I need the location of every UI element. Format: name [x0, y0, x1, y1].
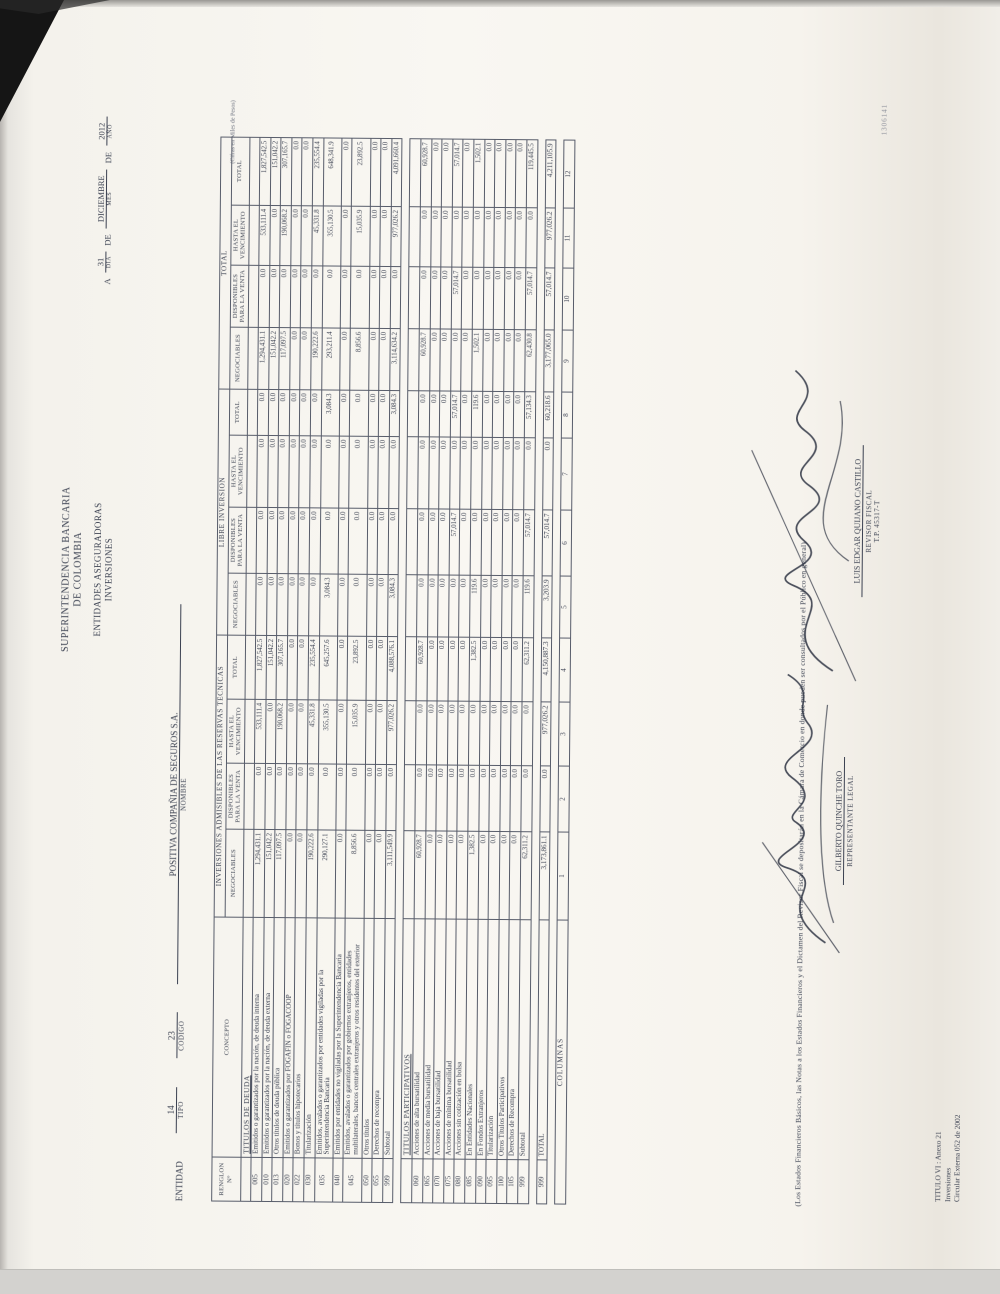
row-2-090-code: 090 [475, 1159, 486, 1203]
section-2-blank7 [407, 437, 418, 509]
tipo-value: 14 [166, 1087, 177, 1133]
row-1-020-col1: 0.0 [285, 830, 296, 918]
row-2-090-col4: 0.0 [480, 637, 491, 701]
row-1-022-col6: 0.0 [299, 508, 310, 574]
column-number-7: 7 [561, 438, 572, 510]
column-number-2: 2 [558, 766, 569, 832]
row-2-075-col1: 0.0 [446, 831, 457, 919]
row-1-040-col12: 0.0 [341, 138, 352, 206]
row-1-010-col1: 151,042.2 [264, 829, 275, 917]
row-1-005-col2: 0.0 [254, 763, 265, 829]
row-1-005-col11: 533,111.4 [259, 205, 270, 265]
section-2-blank9 [408, 329, 419, 391]
row-1-030-code: 030 [304, 1158, 315, 1202]
section-1-blank5 [245, 573, 256, 635]
row-2-999-col1: 62,311.2 [520, 832, 531, 920]
section-1-blank12 [249, 137, 260, 205]
deposit-footnote: (Los Estados Financieros Básicos, las No… [793, 127, 811, 1207]
row-1-010-col11: 0.0 [270, 205, 281, 265]
row-1-999-col5: 3,084.3 [387, 575, 398, 637]
row-2-080-col5: 0.0 [459, 575, 470, 637]
row-1-013-col7: 0.0 [278, 436, 289, 508]
row-2-090-col10: 0.0 [483, 267, 494, 329]
row-1-013-col11: 190,068.2 [280, 206, 291, 266]
row-1-035-concept: Emitidos, avalados o garantizados por en… [315, 918, 335, 1158]
row-2-095-col5: 0.0 [491, 575, 502, 637]
row-1-050-col6: 0.0 [367, 508, 378, 574]
row-2-105-col4: 0.0 [511, 638, 522, 702]
row-2-085-code: 085 [465, 1159, 476, 1203]
subheader-col8: TOTAL [229, 389, 247, 435]
row-2-100-col9: 0.0 [503, 330, 514, 392]
row-2-065-col2: 0.0 [425, 765, 436, 831]
row-1-999-col4: 4,088,576.1 [387, 637, 398, 701]
row-1-030-col8: 0.0 [310, 390, 321, 436]
row-2-085-col12: 1,502.1 [473, 139, 484, 207]
row-1-045-col10: 0.0 [351, 266, 370, 328]
row-2-999-col12: 119,445.5 [526, 140, 537, 208]
row-1-055-col10: 0.0 [379, 266, 390, 328]
column-number-6: 6 [560, 510, 571, 576]
row-1-045-col1: 8,856.6 [346, 830, 365, 918]
section-1-blank4 [245, 635, 256, 699]
row-1-050-code: 050 [361, 1158, 372, 1202]
row-1-999-col2: 0.0 [386, 765, 397, 831]
row-2-999-col7: 0.0 [524, 438, 535, 510]
row-2-065-col12: 0.0 [431, 139, 442, 207]
column-number-11: 11 [563, 208, 574, 268]
row-2-999-col2: 0.0 [521, 766, 532, 832]
row-2-060-col11: 0.0 [420, 207, 431, 267]
total-row-col8: 60,218.6 [543, 392, 554, 438]
row-1-035-col3: 355,130.5 [318, 700, 337, 764]
row-1-022-col3: 0.0 [297, 700, 308, 764]
authority-block: SUPERINTENDENCIA BANCARIA DE COLOMBIA [59, 424, 86, 714]
subheader-col9: NEGOCIABLES [229, 327, 248, 389]
row-1-005-col4: 1,827,542.5 [255, 635, 266, 699]
form-rotated-content: SUPERINTENDENCIA BANCARIA DE COLOMBIA EN… [0, 0, 1000, 1294]
column-number-9: 9 [562, 330, 573, 392]
row-1-040-code: 040 [332, 1158, 343, 1202]
row-1-050-col10: 0.0 [369, 266, 380, 328]
row-2-080-col6: 0.0 [460, 509, 471, 575]
column-number-8: 8 [561, 392, 572, 438]
section-2-code [401, 1159, 412, 1203]
column-numbers-row: COLUMNAS123456789101112 [555, 140, 575, 1204]
row-2-075-col7: 0.0 [449, 437, 460, 509]
subheader-col4: TOTAL [227, 635, 246, 699]
row-1-035-col7: 0.0 [320, 436, 339, 508]
row-1-040-col7: 0.0 [339, 436, 350, 508]
row-1-022-col1: 0.0 [296, 830, 307, 918]
row-1-035-col5: 3,084.3 [319, 574, 338, 636]
row-2-999-col5: 119.6 [523, 576, 534, 638]
row-1-010-col5: 0.0 [266, 573, 277, 635]
codigo-field: 23 CODIGO [166, 1013, 185, 1059]
row-2-090-col6: 0.0 [481, 509, 492, 575]
row-2-070-col2: 0.0 [436, 765, 447, 831]
row-2-085-col10: 0.0 [472, 267, 483, 329]
total-row-col3: 977,026.2 [540, 702, 551, 766]
row-2-070-col4: 0.0 [437, 637, 448, 701]
row-2-070-col6: 0.0 [438, 509, 449, 575]
row-2-080-col3: 0.0 [458, 701, 469, 765]
row-2-060-col12: 60,928.7 [420, 139, 431, 207]
row-1-030-col5: 0.0 [309, 574, 320, 636]
row-1-999-code: 999 [382, 1158, 393, 1202]
row-2-100-col3: 0.0 [500, 702, 511, 766]
row-2-070-code: 070 [433, 1159, 444, 1203]
form-subtitles: ENTIDADES ASEGURADORAS INVERSIONES [91, 424, 116, 714]
row-2-070-col1: 0.0 [435, 831, 446, 919]
row-1-045-col5: 0.0 [348, 574, 367, 636]
row-2-070-col7: 0.0 [439, 437, 450, 509]
row-1-050-col11: 0.0 [369, 206, 380, 266]
grand-total-row: 999TOTAL3,173,861.10.0977,026.24,150,887… [536, 140, 556, 1204]
signature1-role: REPRESENTANTE LEGAL [845, 691, 855, 951]
signature2-block: LUIS EDGAR QUIJANO CASTILLO REVISOR FISC… [846, 361, 883, 681]
row-2-999-col11: 0.0 [526, 208, 537, 268]
section-2-blank10 [409, 267, 420, 329]
row-2-075-code: 075 [443, 1159, 454, 1203]
row-1-010-col6: 0.0 [267, 507, 278, 573]
row-2-105-col11: 0.0 [515, 208, 526, 268]
row-2-095-code: 095 [486, 1159, 497, 1203]
row-2-999-col3: 0.0 [521, 702, 532, 766]
row-1-035-col1: 290,127.1 [317, 830, 336, 918]
row-2-065-col10: 0.0 [430, 267, 441, 329]
row-1-040-col10: 0.0 [340, 266, 351, 328]
row-2-060-col3: 0.0 [415, 701, 426, 765]
row-1-040-col9: 0.0 [340, 328, 351, 390]
row-2-065-col9: 0.0 [429, 329, 440, 391]
row-2-080-col4: 0.0 [458, 637, 469, 701]
row-2-095-col6: 0.0 [491, 509, 502, 575]
section-1-blank7 [246, 435, 257, 507]
entity-line: ENTIDAD 14 TIPO 23 CODIGO POSITIVA COMPA… [165, 301, 192, 1201]
section-1-blank1 [243, 829, 254, 917]
row-2-060-col9: 60,928.7 [419, 329, 430, 391]
row-2-999-col6: 57,014.7 [523, 510, 534, 576]
date-year-label: AÑO [107, 117, 113, 146]
row-1-013-col2: 0.0 [275, 764, 286, 830]
section-1-blank8 [247, 389, 258, 435]
row-2-065-col8: 0.0 [429, 391, 440, 437]
date-day-label: DIA [106, 252, 112, 273]
tipo-label: TIPO [177, 1087, 185, 1133]
row-2-075-col9: 0.0 [451, 329, 462, 391]
row-1-030-col10: 0.0 [311, 266, 322, 328]
row-1-030-col1: 190,222.6 [306, 830, 317, 918]
row-1-055-col1: 0.0 [374, 830, 385, 918]
row-1-999-concept: Subtotal [383, 919, 396, 1159]
row-2-105-col10: 0.0 [515, 268, 526, 330]
row-1-013-col12: 307,165.7 [281, 137, 292, 205]
row-2-080-col9: 0.0 [461, 329, 472, 391]
row-1-035-col12: 648,341.9 [323, 138, 342, 206]
row-1-045-col8: 0.0 [350, 390, 369, 436]
row-2-100-col12: 0.0 [505, 140, 516, 208]
date-year: 2012 [96, 117, 107, 146]
subheader-col10: DISPONIBLES PARA LA VENTA [230, 265, 249, 327]
row-1-010-col10: 0.0 [269, 265, 280, 327]
row-1-045-col3: 15,035.9 [347, 700, 366, 764]
row-1-040-col2: 0.0 [336, 764, 347, 830]
row-1-022-col10: 0.0 [301, 266, 312, 328]
row-1-030-col7: 0.0 [310, 436, 321, 508]
row-1-045-col12: 23,892.5 [352, 138, 371, 206]
row-1-013-col1: 117,097.5 [274, 830, 285, 918]
column-number-3: 3 [559, 702, 570, 766]
signature2-tp: T.P. 45317-T [872, 361, 883, 681]
total-row-col5: 3,203.9 [541, 576, 552, 638]
row-1-005-col5: 0.0 [256, 573, 267, 635]
row-2-085-col11: 0.0 [473, 207, 484, 267]
row-1-040-col1: 0.0 [335, 830, 346, 918]
total-row-col7: 0.0 [542, 438, 553, 510]
row-2-060-col8: 0.0 [418, 391, 429, 437]
subheader-col2: DISPONIBLES PARA LA VENTA [225, 763, 244, 829]
row-1-999-col12: 4,091,660.4 [391, 138, 402, 206]
row-1-030-col9: 190,222.6 [311, 328, 322, 390]
row-2-999-concept: Subtotal [518, 920, 531, 1160]
row-2-100-col8: 0.0 [503, 392, 514, 438]
section-2-blank1 [404, 831, 415, 919]
row-1-013-col6: 0.0 [277, 508, 288, 574]
row-1-020-col11: 0.0 [291, 206, 302, 266]
row-1-020-col7: 0.0 [289, 436, 300, 508]
row-1-040-col4: 0.0 [337, 636, 348, 700]
row-1-005-col10: 0.0 [258, 265, 269, 327]
section-1-blank3 [244, 699, 255, 763]
authority-line2: DE COLOMBIA [71, 424, 86, 714]
row-2-090-col11: 0.0 [483, 207, 494, 267]
scanned-document-page: SUPERINTENDENCIA BANCARIA DE COLOMBIA EN… [0, 0, 1000, 1294]
row-1-022-code: 022 [293, 1158, 304, 1202]
row-1-035-code: 035 [314, 1158, 333, 1202]
report-date-line: A 31 DIA DE DICIEMBRE MES DE 2012 AÑO [95, 50, 114, 286]
row-2-095-col4: 0.0 [490, 637, 501, 701]
date-day-field: 31 DIA [95, 252, 112, 273]
row-1-010-col7: 0.0 [267, 435, 278, 507]
row-1-020-col2: 0.0 [286, 764, 297, 830]
row-2-105-col3: 0.0 [511, 702, 522, 766]
row-2-065-col11: 0.0 [430, 207, 441, 267]
row-2-090-col9: 0.0 [482, 329, 493, 391]
row-1-030-col6: 0.0 [309, 508, 320, 574]
row-2-105-col1: 0.0 [509, 832, 520, 920]
row-1-020-col8: 0.0 [289, 390, 300, 436]
section-1-blank6 [246, 507, 257, 573]
row-2-080-code: 080 [454, 1159, 465, 1203]
annex-reference: TITULO VI : Anexo 21 Inversiones Circula… [933, 972, 964, 1202]
row-1-030-col4: 235,554.4 [308, 636, 319, 700]
row-2-080-col10: 0.0 [462, 267, 473, 329]
row-2-095-col7: 0.0 [492, 437, 503, 509]
total-row-col11: 977,026.2 [544, 208, 555, 268]
row-2-100-col5: 0.0 [501, 576, 512, 638]
codigo-value: 23 [166, 1013, 177, 1059]
subheader-col6: DISPONIBLES PARA LA VENTA [228, 507, 247, 573]
row-1-999-col7: 0.0 [389, 437, 400, 509]
row-2-075-col10: 57,014.7 [451, 267, 462, 329]
row-2-999-col4: 62,311.2 [522, 638, 533, 702]
row-1-030-col11: 45,331.8 [312, 206, 323, 266]
column-number-1: 1 [557, 832, 568, 920]
row-1-999-col1: 3,111,549.9 [385, 831, 396, 919]
date-day: 31 [95, 252, 106, 273]
row-1-013-col8: 0.0 [279, 389, 290, 435]
row-1-055-col8: 0.0 [379, 390, 390, 436]
row-2-095-col3: 0.0 [490, 701, 501, 765]
row-1-013-code: 013 [272, 1158, 283, 1202]
row-1-035-col4: 645,257.6 [319, 636, 338, 700]
row-1-020-col10: 0.0 [290, 266, 301, 328]
row-1-055-code: 055 [372, 1158, 383, 1202]
row-2-090-col2: 0.0 [478, 765, 489, 831]
column-number-12: 12 [563, 140, 574, 208]
row-2-080-col11: 0.0 [462, 207, 473, 267]
row-2-070-col8: 0.0 [440, 391, 451, 437]
row-2-070-col5: 0.0 [438, 575, 449, 637]
row-2-085-col1: 1,382.5 [467, 831, 478, 919]
row-2-095-col9: 0.0 [493, 329, 504, 391]
section-1-blank11 [248, 205, 259, 265]
row-2-085-col9: 1,502.1 [472, 329, 483, 391]
row-2-065-col3: 0.0 [426, 701, 437, 765]
row-2-065-col1: 0.0 [425, 831, 436, 919]
row-2-105-col2: 0.0 [510, 766, 521, 832]
row-1-005-col3: 533,111.4 [255, 699, 266, 763]
row-1-035-col10: 0.0 [322, 266, 341, 328]
subheader-col7: HASTA EL VENCIMIENTO [228, 435, 247, 507]
form-reading-canvas: SUPERINTENDENCIA BANCARIA DE COLOMBIA EN… [53, 50, 993, 1222]
row-1-010-col9: 151,042.2 [268, 327, 279, 389]
row-2-999-col10: 57,014.7 [525, 268, 536, 330]
row-2-105-col9: 0.0 [514, 330, 525, 392]
row-1-010-col4: 151,042.2 [266, 635, 277, 699]
row-2-090-col5: 0.0 [480, 575, 491, 637]
renglon-header: RENGLON N° [212, 1157, 241, 1201]
row-1-045-col9: 8,856.6 [350, 328, 369, 390]
row-2-999-col9: 62,430.8 [525, 330, 536, 392]
subheader-col3: HASTA EL VENCIMIENTO [226, 699, 245, 763]
section-2-blank5 [406, 575, 417, 637]
section-1-code [240, 1157, 251, 1201]
row-1-055-col6: 0.0 [377, 508, 388, 574]
row-1-045-col11: 15,035.9 [351, 206, 370, 266]
row-2-085-col7: 0.0 [471, 437, 482, 509]
row-2-070-col11: 0.0 [441, 207, 452, 267]
row-2-060-col4: 60,928.7 [416, 637, 427, 701]
row-1-045-code: 045 [343, 1158, 362, 1202]
row-1-010-code: 010 [261, 1157, 272, 1201]
subheader-col11: HASTA EL VENCIMIENTO [230, 205, 249, 265]
row-2-075-col3: 0.0 [447, 701, 458, 765]
section-2-blank8 [408, 391, 419, 437]
row-2-075-col4: 0.0 [448, 637, 459, 701]
row-2-095-col11: 0.0 [494, 207, 505, 267]
row-1-055-col4: 0.0 [376, 636, 387, 700]
row-1-010-col8: 0.0 [268, 389, 279, 435]
total-row-col4: 4,150,887.3 [541, 638, 552, 702]
row-1-055-col11: 0.0 [380, 206, 391, 266]
row-2-075-col5: 0.0 [448, 575, 459, 637]
total-row-col12: 4,211,105.9 [545, 140, 556, 208]
section-2-blank3 [405, 701, 416, 765]
row-1-040-col8: 0.0 [339, 390, 350, 436]
row-1-020-code: 020 [283, 1158, 294, 1202]
row-2-080-col2: 0.0 [457, 765, 468, 831]
columnas-label: COLUMNAS [555, 920, 568, 1204]
row-2-080-col12: 0.0 [463, 139, 474, 207]
row-1-050-col4: 0.0 [366, 636, 377, 700]
row-1-005-col8: 0.0 [257, 389, 268, 435]
row-1-005-col1: 1,294,431.1 [253, 829, 264, 917]
row-2-060-col1: 60,928.7 [414, 831, 425, 919]
section-1-blank2 [243, 763, 254, 829]
section-2-blank6 [407, 509, 418, 575]
row-1-005-col12: 1,827,542.5 [259, 137, 270, 205]
subheader-col12: TOTAL [231, 137, 250, 205]
row-1-013-col5: 0.0 [277, 574, 288, 636]
nombre-field: POSITIVA COMPAÑIA DE SEGUROS S.A. NOMBRE [167, 604, 189, 984]
row-2-090-col1: 0.0 [478, 831, 489, 919]
row-1-055-col12: 0.0 [381, 138, 392, 206]
row-1-035-col2: 0.0 [318, 764, 337, 830]
row-2-065-col7: 0.0 [428, 437, 439, 509]
row-1-040-col6: 0.0 [338, 508, 349, 574]
row-1-020-col9: 0.0 [290, 328, 301, 390]
row-1-050-col7: 0.0 [367, 436, 378, 508]
row-1-010-col2: 0.0 [265, 763, 276, 829]
row-2-085-col8: 119.6 [471, 391, 482, 437]
row-2-090-col3: 0.0 [479, 701, 490, 765]
total-row-col2: 0.0 [539, 766, 550, 832]
row-1-055-col3: 0.0 [376, 700, 387, 764]
row-1-020-col3: 0.0 [286, 700, 297, 764]
row-1-030-col3: 45,331.8 [308, 700, 319, 764]
total-row-col6: 57,014.7 [542, 510, 553, 576]
row-2-090-col7: 0.0 [481, 437, 492, 509]
date-de1: DE [102, 234, 112, 245]
stamp-number: 1306141 [880, 104, 888, 136]
form-subtitle-inversiones: INVERSIONES [102, 425, 116, 715]
row-1-050-col3: 0.0 [365, 700, 376, 764]
total-row-code: 999 [536, 1160, 547, 1204]
date-year-field: 2012 AÑO [96, 117, 113, 146]
row-2-080-col7: 0.0 [460, 437, 471, 509]
total-row-label: TOTAL [537, 920, 550, 1160]
row-1-040-col11: 0.0 [341, 206, 352, 266]
row-1-999-col6: 0.0 [388, 509, 399, 575]
signature1-block: GILBERTO QUINCHE TORO REPRESENTANTE LEGA… [827, 691, 855, 951]
row-1-045-concept: Emitidos, avalados o garantizados por go… [343, 918, 363, 1158]
signature2-name: LUIS EDGAR QUIJANO CASTILLO [852, 445, 863, 598]
row-2-105-col8: 0.0 [514, 392, 525, 438]
row-2-075-col6: 57,014.7 [449, 509, 460, 575]
row-2-060-col6: 0.0 [417, 509, 428, 575]
codigo-label: CODIGO [177, 1013, 185, 1059]
row-1-050-col8: 0.0 [368, 390, 379, 436]
row-2-095-col2: 0.0 [489, 765, 500, 831]
row-1-035-col11: 355,130.5 [322, 206, 341, 266]
row-1-050-col9: 0.0 [368, 328, 379, 390]
row-1-022-col4: 0.0 [298, 636, 309, 700]
row-1-999-col9: 3,114,634.2 [390, 328, 401, 390]
row-2-075-col8: 57,014.7 [450, 391, 461, 437]
row-1-035-col6: 0.0 [320, 508, 339, 574]
